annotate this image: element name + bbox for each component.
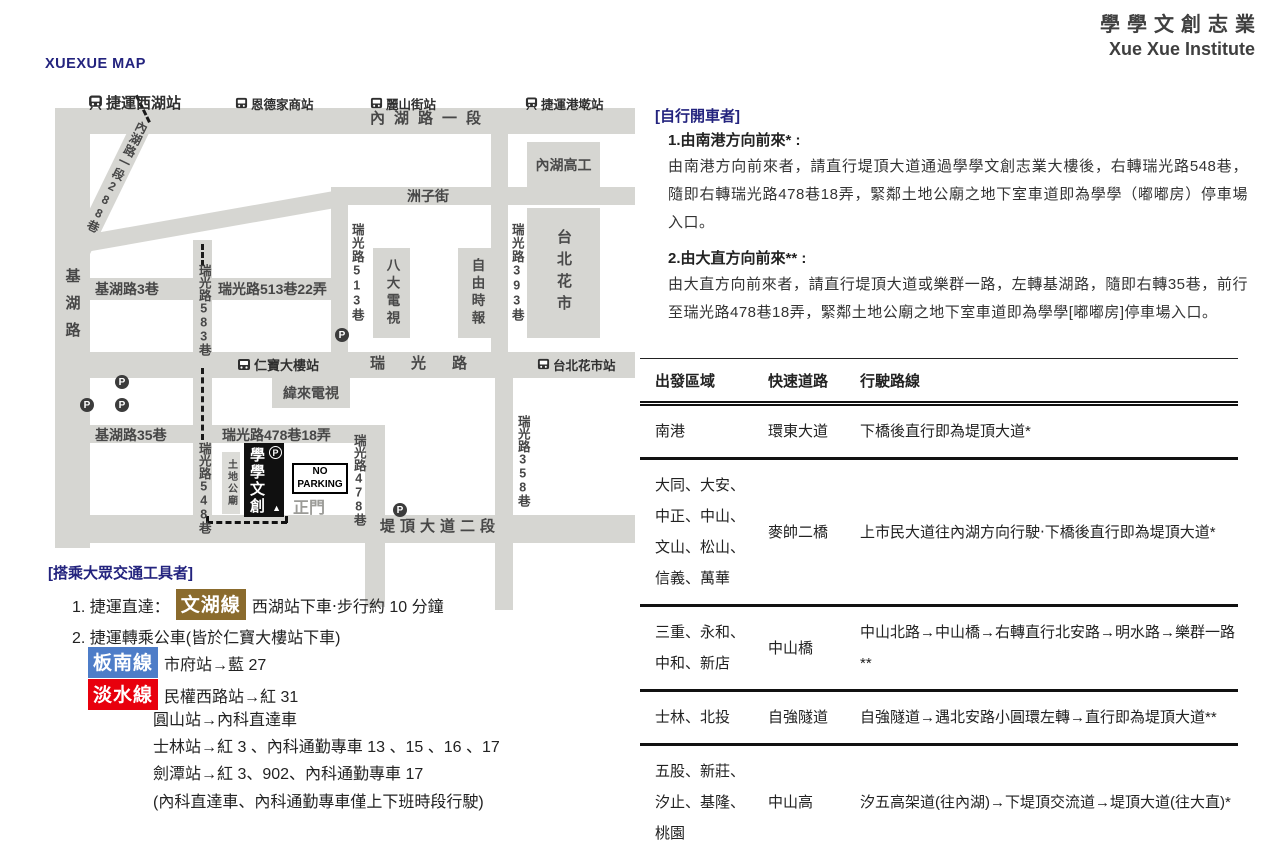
block-label: 台北花市 <box>553 229 574 317</box>
block-bada-tv: 八大電視 <box>373 248 410 338</box>
bannan-line-badge: 板南線 <box>88 647 158 678</box>
station-label: 捷運西湖站 <box>106 92 181 113</box>
road-label-ruiguang-lane548: 瑞光路548巷 <box>196 442 210 534</box>
block-label: 自由時報 <box>467 258 487 328</box>
bus-icon <box>235 97 248 110</box>
brand: 學學文創志業 Xue Xue Institute <box>1100 8 1255 60</box>
driving-section-header: [自行開車者] <box>655 105 740 126</box>
block-label: 緯來電視 <box>283 383 339 403</box>
station-label: 仁寶大樓站 <box>254 355 319 374</box>
block-liberty-times: 自由時報 <box>458 248 495 338</box>
road-zhouzi-st <box>337 187 635 205</box>
transit-section-header: [搭乘大眾交通工具者] <box>48 562 193 583</box>
transit-item1-prefix: 1. 捷運直達： <box>72 593 170 617</box>
road-label-ruiguang-lane478-18: 瑞光路478巷18弄 <box>222 428 331 443</box>
cell-route: 下橋後直行即為堤頂大道* <box>845 404 1238 459</box>
station-label: 麗山街站 <box>386 94 436 113</box>
road-label-neihu-lane288: 內湖路一段288巷 <box>83 119 149 235</box>
route-tick-right <box>285 516 288 523</box>
transit-item2-text: 2. 捷運轉乘公車(皆於仁寶大樓站下車) <box>72 624 340 648</box>
cell-origin: 南港 <box>640 404 753 459</box>
block-label: 土地公廟 <box>224 459 239 507</box>
page: 學學文創志業 Xue Xue Institute XUEXUE MAP 內湖路一… <box>0 0 1280 843</box>
transit-item1-suffix: 西湖站下車‧步行約 10 分鐘 <box>252 593 444 617</box>
cell-route: 中山北路→中山橋→右轉直行北安路→明水路→樂群一路** <box>845 606 1238 691</box>
driving-sec2-title: 2.由大直方向前來** : <box>668 247 806 268</box>
xuexue-building-label: 學學文創 <box>246 447 267 515</box>
station-bus-lishan: 麗山街站 <box>370 94 436 113</box>
road-label-ruiguang-lane478: 瑞光路478巷 <box>351 434 365 526</box>
building-parking-icon: P <box>269 446 282 459</box>
transit-extra-text: 士林站→紅 3 、內科通勤專車 13 、15 、16 、17 <box>153 733 500 757</box>
station-label: 台北花市站 <box>553 355 616 374</box>
col-header-route: 行駛路線 <box>845 359 1238 404</box>
transit-extra-line: 圓山站→內科直達車 <box>153 706 297 730</box>
block-xuexue-building: 學學文創 P ▲ <box>244 443 284 517</box>
transit-extra-line: 士林站→紅 3 、內科通勤專車 13 、15 、16 、17 <box>153 733 500 757</box>
road-label-ruiguang-lane513: 瑞光路513巷 <box>349 223 363 322</box>
entrance-arrow-icon: ▲ <box>272 503 281 513</box>
danshui-line-badge: 淡水線 <box>88 679 158 710</box>
road-label-ruiguang-lane583: 瑞光路583巷 <box>196 264 210 356</box>
road-label-zhouzi-st: 洲子街 <box>407 189 449 204</box>
brand-name-chinese: 學學文創志業 <box>1100 8 1262 37</box>
cell-route: 汐五高架道(往內湖)→下堤頂交流道→堤頂大道(往大直)* <box>845 745 1238 843</box>
driving-routes-table: 出發區域 快速道路 行駛路線 南港 環東大道 下橋後直行即為堤頂大道* 大同、大… <box>640 358 1238 843</box>
transit-item-2: 2. 捷運轉乘公車(皆於仁寶大樓站下車) <box>72 624 340 648</box>
xuexue-map: 內湖路一段288巷 內湖路一段 基湖路 洲子街 瑞光路513巷 瑞光路393巷 … <box>55 92 635 550</box>
transit-extra-text: 圓山站→內科直達車 <box>153 706 297 730</box>
block-label: 八大電視 <box>382 258 402 328</box>
mrt-icon <box>88 95 103 110</box>
cell-route: 上市民大道往內湖方向行駛‧下橋後直行即為堤頂大道* <box>845 459 1238 606</box>
block-neihu-vocational-school: 內湖高工 <box>527 142 600 187</box>
table-row: 大同、大安、中正、中山、文山、松山、信義、萬華 麥帥二橋 上市民大道往內湖方向行… <box>640 459 1238 606</box>
road-label-ruiguang-lane358: 瑞光路358巷 <box>515 415 529 507</box>
cell-origin: 士林、北投 <box>640 691 753 745</box>
brand-name-english: Xue Xue Institute <box>1100 39 1255 60</box>
block-label: 內湖高工 <box>536 155 592 175</box>
cell-expressway: 麥帥二橋 <box>753 459 845 606</box>
transit-extra-text: 劍潭站→紅 3、902、內科通勤專車 17 <box>153 760 423 784</box>
mrt-icon <box>525 97 538 110</box>
no-parking-line1: NO <box>313 466 328 479</box>
station-bus-renbao: 仁寶大樓站 <box>237 355 319 374</box>
parking-icon: P <box>115 398 129 412</box>
bus-icon <box>537 358 550 371</box>
road-label-jihu-rd: 基湖路 <box>63 268 80 349</box>
road-label-ruiguang-rd: 瑞光路 <box>370 356 493 373</box>
station-mrt-gangqian: 捷運港墘站 <box>525 94 604 113</box>
cell-expressway: 環東大道 <box>753 404 845 459</box>
parking-icon: P <box>335 328 349 342</box>
station-bus-ende: 恩德家商站 <box>235 94 314 113</box>
table-row: 三重、永和、中和、新店 中山橋 中山北路→中山橋→右轉直行北安路→明水路→樂群一… <box>640 606 1238 691</box>
parking-icon: P <box>80 398 94 412</box>
cell-expressway: 中山高 <box>753 745 845 843</box>
table-row: 五股、新莊、汐止、基隆、桃園 中山高 汐五高架道(往內湖)→下堤頂交流道→堤頂大… <box>640 745 1238 843</box>
block-land-god-temple: 土地公廟 <box>222 452 240 514</box>
cell-route: 自強隧道→遇北安路小圓環左轉→直行即為堤頂大道** <box>845 691 1238 745</box>
road-label-ruiguang-lane513-22: 瑞光路513巷22弄 <box>218 282 327 297</box>
walking-route-dash-bottom <box>207 521 287 524</box>
col-header-origin: 出發區域 <box>640 359 753 404</box>
bannan-line-text: 市府站→藍 27 <box>164 651 266 675</box>
walking-route-dash-583b <box>201 368 204 440</box>
table-header-row: 出發區域 快速道路 行駛路線 <box>640 359 1238 404</box>
no-parking-sign: NO PARKING <box>292 463 348 494</box>
road-ruiguang-lane358 <box>495 363 513 610</box>
cell-origin: 五股、新莊、汐止、基隆、桃園 <box>640 745 753 843</box>
road-label-tiding-blvd: 堤頂大道二段 <box>380 519 500 536</box>
parking-icon: P <box>115 375 129 389</box>
table-row: 南港 環東大道 下橋後直行即為堤頂大道* <box>640 404 1238 459</box>
transit-extra-note: (內科直達車、內科通勤專車僅上下班時段行駛) <box>153 788 484 812</box>
parking-icon: P <box>393 503 407 517</box>
cell-expressway: 自強隧道 <box>753 691 845 745</box>
wenhu-line-badge: 文湖線 <box>176 589 246 620</box>
bus-icon <box>370 97 383 110</box>
danshui-line-text: 民權西路站→紅 31 <box>164 683 298 707</box>
cell-origin: 三重、永和、中和、新店 <box>640 606 753 691</box>
block-weilai-tv: 緯來電視 <box>272 378 350 408</box>
no-parking-line2: PARKING <box>297 479 342 492</box>
station-bus-huashi: 台北花市站 <box>537 355 616 374</box>
driving-sec1-body: 由南港方向前來者，請直行堤頂大道通過學學文創志業大樓後，右轉瑞光路548巷，隨即… <box>668 153 1248 237</box>
road-label-ruiguang-lane393: 瑞光路393巷 <box>509 223 523 322</box>
road-label-jihu-lane35: 基湖路35巷 <box>95 428 167 443</box>
transit-extra-text: (內科直達車、內科通勤專車僅上下班時段行駛) <box>153 788 484 812</box>
table-row: 士林、北投 自強隧道 自強隧道→遇北安路小圓環左轉→直行即為堤頂大道** <box>640 691 1238 745</box>
walking-route-dash-583a <box>201 244 204 266</box>
station-mrt-xihu: 捷運西湖站 <box>88 92 181 113</box>
page-title: XUEXUE MAP <box>45 56 146 72</box>
cell-origin: 大同、大安、中正、中山、文山、松山、信義、萬華 <box>640 459 753 606</box>
block-taipei-flower-market: 台北花市 <box>527 208 600 338</box>
station-label: 捷運港墘站 <box>541 94 604 113</box>
transit-extra-line: 劍潭站→紅 3、902、內科通勤專車 17 <box>153 760 423 784</box>
transit-item-1: 1. 捷運直達： 文湖線 西湖站下車‧步行約 10 分鐘 <box>72 589 444 620</box>
bannan-line-row: 板南線 市府站→藍 27 <box>88 647 266 678</box>
main-gate-label: 正門 <box>293 494 325 518</box>
col-header-expressway: 快速道路 <box>753 359 845 404</box>
driving-sec2-body: 由大直方向前來者，請直行堤頂大道或樂群一路，左轉基湖路，隨即右轉35巷，前行至瑞… <box>668 271 1248 327</box>
road-label-jihu-lane3: 基湖路3巷 <box>95 282 159 297</box>
driving-sec1-title: 1.由南港方向前來* : <box>668 129 801 150</box>
cell-expressway: 中山橋 <box>753 606 845 691</box>
bus-icon <box>237 358 251 372</box>
station-label: 恩德家商站 <box>251 94 314 113</box>
road-label-neihu-rd: 內湖路一段 <box>370 111 490 128</box>
